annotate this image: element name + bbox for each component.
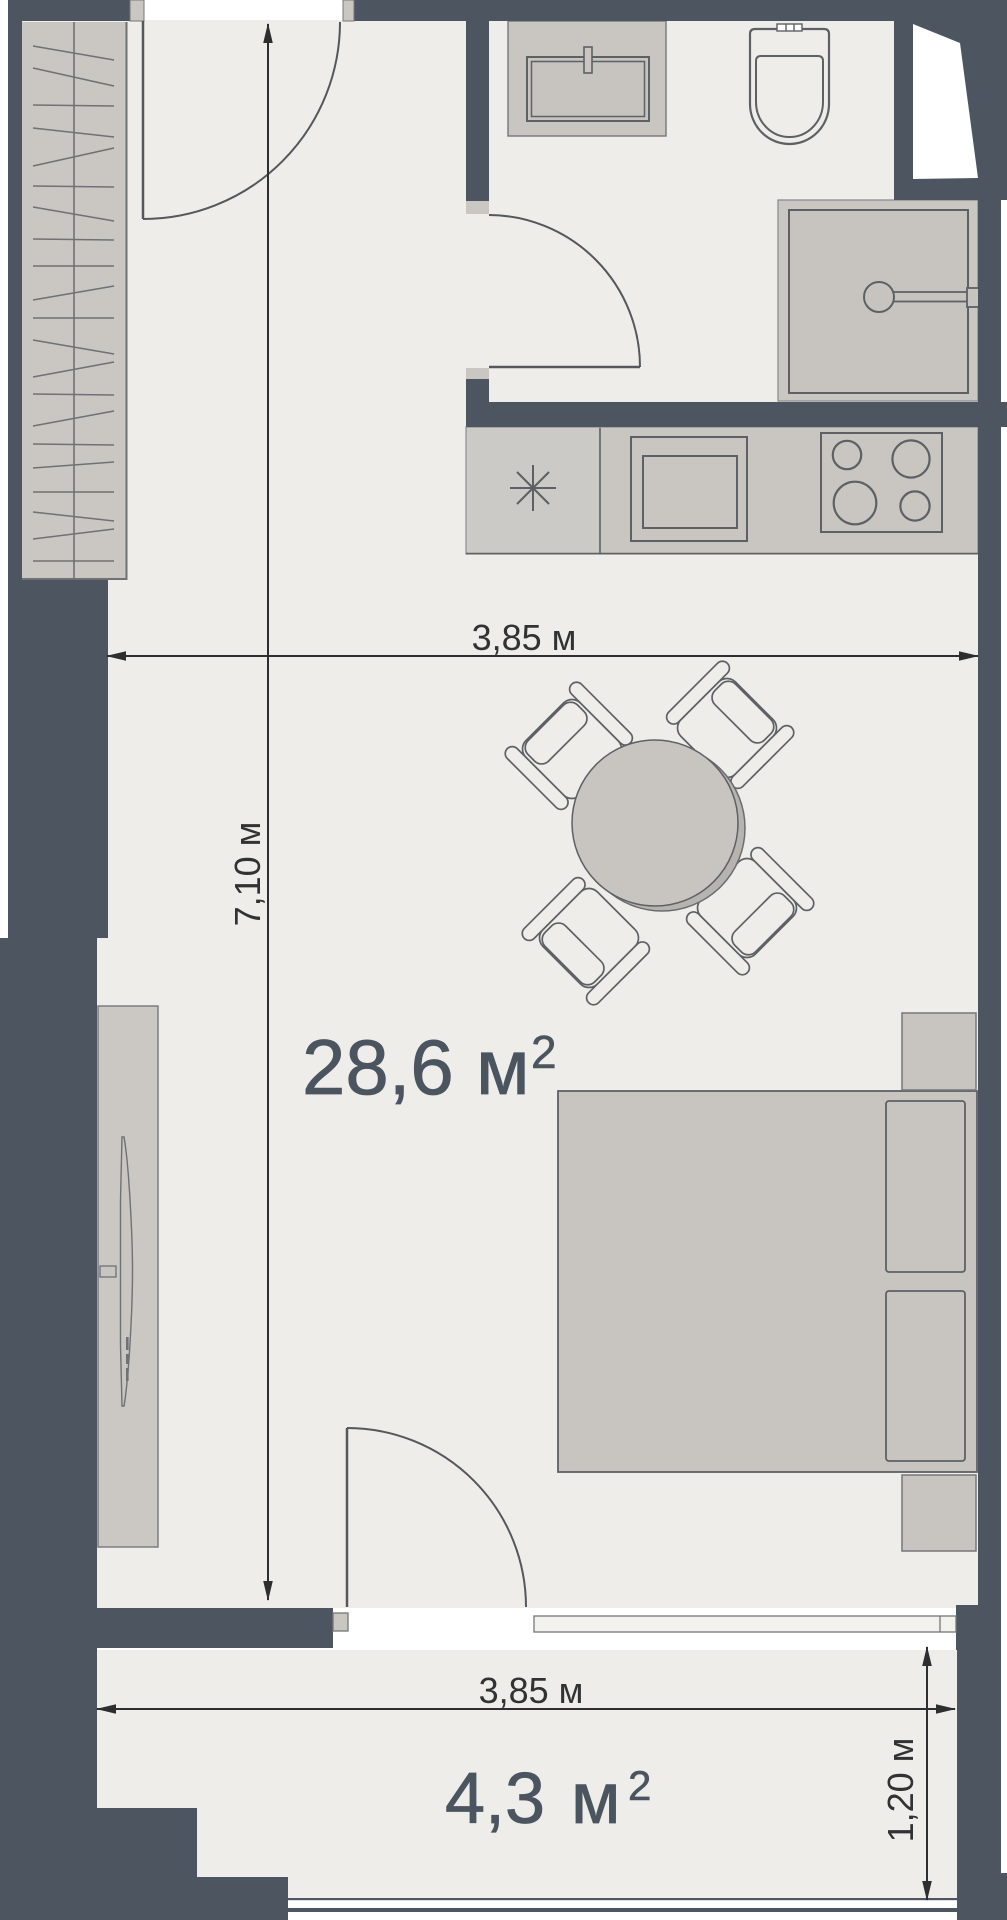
- svg-text:3,85 м: 3,85 м: [479, 1670, 584, 1711]
- svg-text:7,10 м: 7,10 м: [227, 822, 268, 927]
- svg-text:28,6: 28,6: [302, 1023, 454, 1111]
- svg-text:2: 2: [628, 1762, 651, 1809]
- svg-text:2: 2: [531, 1026, 557, 1078]
- svg-text:м: м: [571, 1759, 621, 1839]
- svg-text:м: м: [476, 1023, 530, 1111]
- svg-text:4,3: 4,3: [445, 1759, 545, 1839]
- svg-text:1,20 м: 1,20 м: [880, 1738, 921, 1843]
- svg-text:3,85 м: 3,85 м: [472, 617, 577, 658]
